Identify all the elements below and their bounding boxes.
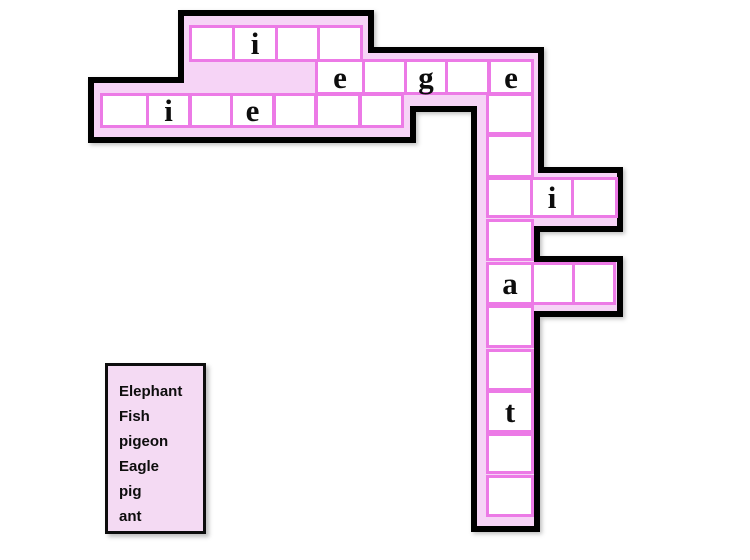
- cell-elephant-9[interactable]: t: [486, 390, 534, 433]
- word-list-box: Elephant Fish pigeon Eagle pig ant: [105, 363, 206, 534]
- crossword-stage: i e g e i e a t i Elephant Fish pigeon E…: [0, 0, 750, 560]
- cell-elephant-6-ant-1[interactable]: a: [486, 262, 534, 305]
- cell-pigeon-5[interactable]: [273, 93, 317, 128]
- cell-pig-3[interactable]: [571, 177, 618, 218]
- cell-eagle-2[interactable]: [362, 59, 407, 95]
- cell-elephant-2[interactable]: [486, 93, 534, 135]
- cell-pigeon-2[interactable]: i: [146, 93, 191, 128]
- cell-elephant-7[interactable]: [486, 305, 534, 348]
- cell-pigeon-7[interactable]: [359, 93, 404, 128]
- word-item-pigeon: pigeon: [119, 429, 203, 454]
- cell-eagle-5-elephant-1[interactable]: e: [488, 59, 534, 95]
- cell-fish-1[interactable]: [189, 25, 235, 62]
- cell-pig-2[interactable]: i: [530, 177, 574, 218]
- cell-fish-4[interactable]: [317, 25, 363, 62]
- cell-elephant-4-pig-1[interactable]: [486, 177, 534, 218]
- cell-eagle-1[interactable]: e: [315, 59, 365, 95]
- cell-elephant-5[interactable]: [486, 219, 534, 261]
- cell-fish-3[interactable]: [275, 25, 320, 62]
- word-item-pig: pig: [119, 479, 203, 504]
- cell-ant-2[interactable]: [531, 262, 575, 305]
- cell-pigeon-1[interactable]: [100, 93, 149, 128]
- cell-eagle-4[interactable]: [445, 59, 490, 95]
- cell-ant-3[interactable]: [572, 262, 616, 305]
- word-item-ant: ant: [119, 504, 203, 529]
- cell-pigeon-4[interactable]: e: [230, 93, 275, 128]
- word-item-elephant: Elephant: [119, 379, 203, 404]
- word-item-fish: Fish: [119, 404, 203, 429]
- cell-pigeon-6[interactable]: [315, 93, 361, 128]
- cell-elephant-11[interactable]: [486, 475, 534, 517]
- cell-eagle-3[interactable]: g: [404, 59, 448, 95]
- cell-pigeon-3[interactable]: [189, 93, 233, 128]
- cell-fish-2[interactable]: i: [232, 25, 278, 62]
- cell-elephant-3[interactable]: [486, 134, 534, 178]
- word-item-eagle: Eagle: [119, 454, 203, 479]
- cell-elephant-10[interactable]: [486, 433, 534, 474]
- cell-elephant-8[interactable]: [486, 349, 534, 391]
